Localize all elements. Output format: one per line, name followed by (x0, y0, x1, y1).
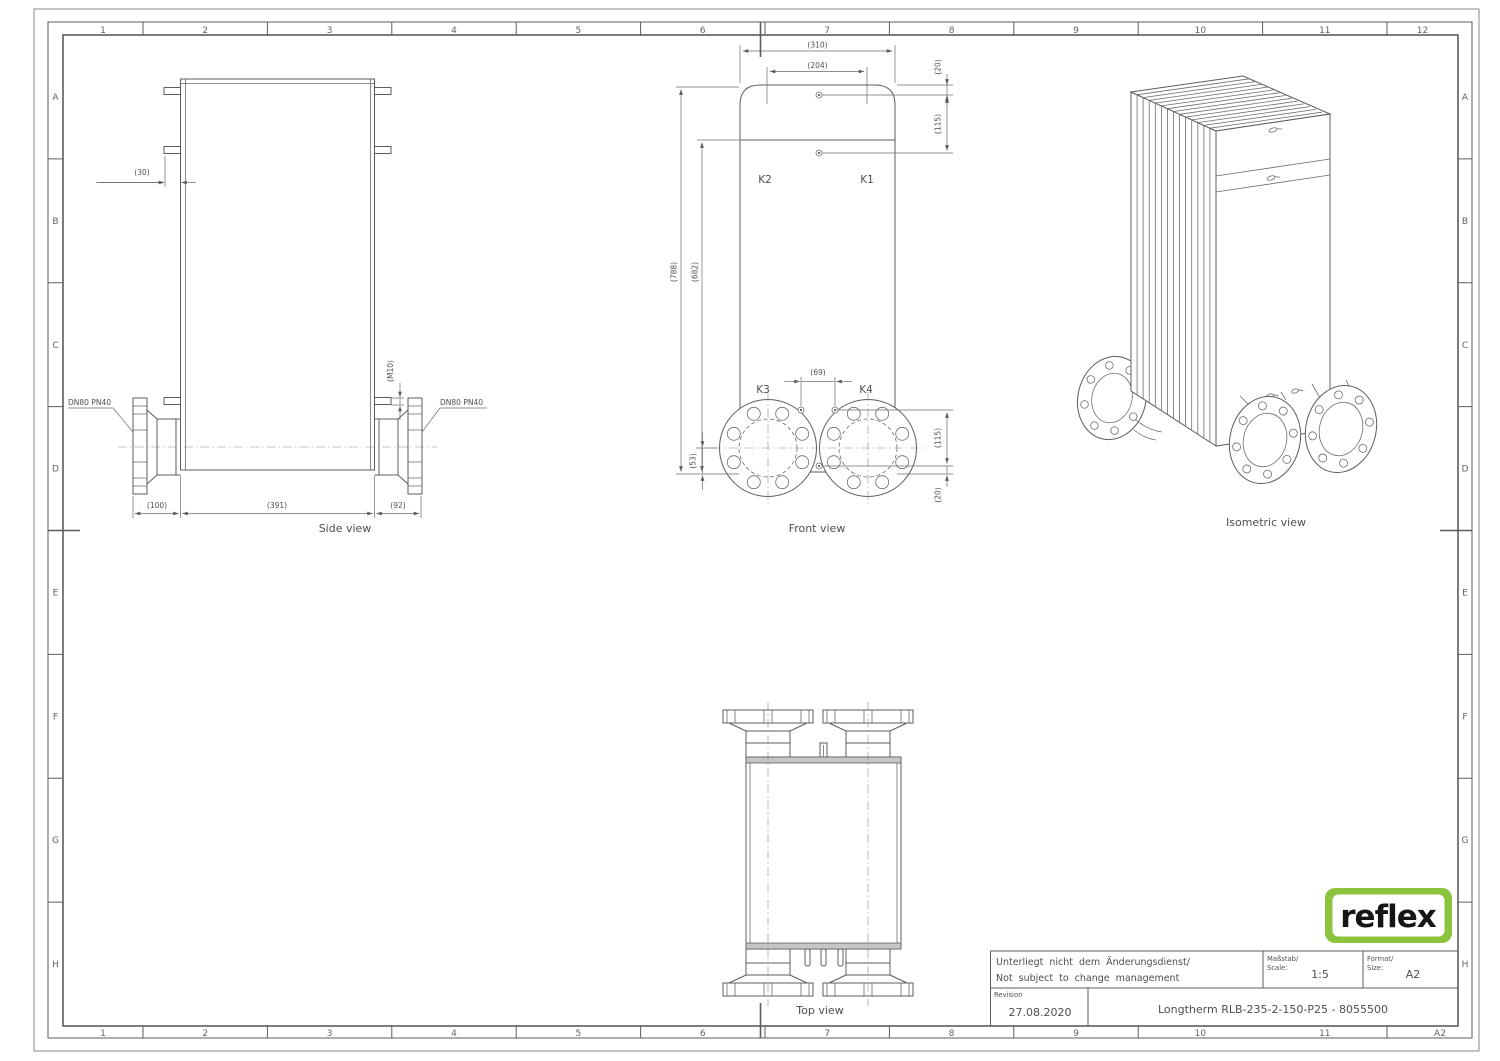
grid-row: A (1462, 93, 1469, 103)
grid-row: G (52, 836, 59, 846)
grid-col: 10 (1195, 1029, 1207, 1039)
grid-col: 12 (1417, 26, 1428, 36)
grid-col: 5 (576, 1029, 582, 1039)
grid-row: F (1462, 713, 1467, 723)
port-k3: K3 (756, 384, 770, 396)
grid-col: 10 (1195, 26, 1207, 36)
scale-value: 1:5 (1311, 968, 1329, 981)
drawing-sheet: 1 2 3 4 5 6 7 8 9 10 11 12 1 2 3 4 5 6 7… (0, 0, 1500, 1061)
format-value: A2 (1406, 968, 1421, 981)
scale-label-de: Maßstab/ (1267, 955, 1299, 963)
grid-col: 1 (100, 1029, 106, 1039)
port-k1: K1 (860, 174, 874, 186)
grid-col: 8 (949, 26, 955, 36)
drawing-title: Longtherm RLB-235-2-150-P25 - 8055500 (1158, 1003, 1388, 1016)
grid-col: 1 (100, 26, 106, 36)
grid-col: 11 (1319, 26, 1330, 36)
grid-col: 9 (1073, 1029, 1079, 1039)
technical-drawing: 1 2 3 4 5 6 7 8 9 10 11 12 1 2 3 4 5 6 7… (0, 0, 1500, 1061)
front-view-label: Front view (789, 522, 846, 535)
grid-col: 3 (327, 1029, 333, 1039)
dim-310: (310) (807, 41, 827, 50)
dim-92: (92) (390, 501, 405, 510)
dim-788: (788) (670, 262, 679, 282)
grid-col: 3 (327, 26, 333, 36)
dim-30: (30) (134, 168, 149, 177)
sheet-size-corner: A2 (1434, 1029, 1446, 1039)
dim-69: (69) (810, 368, 825, 377)
grid-col: 4 (451, 26, 457, 36)
dim-53: (53) (689, 453, 698, 468)
grid-row: H (1462, 960, 1469, 970)
logo-wordmark: reflex (1340, 899, 1436, 935)
grid-col: 4 (451, 1029, 457, 1039)
front-view: (310) (204) (20) (115) (788) (682) (69) … (670, 41, 954, 536)
grid-row: B (1462, 217, 1468, 227)
dim-20-top: (20) (934, 59, 943, 74)
grid-row: B (52, 217, 58, 227)
dim-20-bot: (20) (934, 487, 943, 502)
grid-col: 11 (1319, 1029, 1330, 1039)
change-note-de: Unterliegt nicht dem Änderungsdienst/ (996, 957, 1191, 968)
dim-391: (391) (267, 501, 287, 510)
flange-spec-left: DN80 PN40 (68, 398, 111, 407)
port-k4: K4 (859, 384, 873, 396)
isometric-view-label: Isometric view (1226, 516, 1306, 529)
grid-col: 5 (576, 26, 582, 36)
grid-row: C (1462, 341, 1468, 351)
side-view: DN80 PN40 DN80 PN40 (30) (M10) (100) (39… (68, 79, 487, 535)
dim-100: (100) (147, 501, 167, 510)
dim-m10: (M10) (386, 360, 395, 382)
dim-682: (682) (691, 262, 700, 282)
revision-date: 27.08.2020 (1009, 1006, 1072, 1019)
grid-row: F (53, 713, 58, 723)
side-view-label: Side view (319, 522, 372, 535)
grid-row: A (52, 93, 59, 103)
reflex-logo: reflex (1325, 888, 1452, 943)
grid-row: D (52, 465, 59, 475)
grid-col: 6 (700, 1029, 706, 1039)
dim-115-bot: (115) (934, 428, 943, 448)
grid-letters-left: A B C D E F G H (52, 93, 59, 970)
flange-spec-right: DN80 PN40 (440, 398, 483, 407)
format-label-de: Format/ (1367, 955, 1394, 963)
grid-row: E (1462, 589, 1468, 599)
title-block: Unterliegt nicht dem Änderungsdienst/ No… (991, 951, 1459, 1026)
grid-col: 7 (824, 26, 830, 36)
grid-col: 2 (202, 26, 208, 36)
port-k2: K2 (758, 174, 772, 186)
grid-col: 6 (700, 26, 706, 36)
change-note-en: Not subject to change management (996, 973, 1180, 984)
dim-204: (204) (807, 61, 827, 70)
grid-row: C (52, 341, 58, 351)
isometric-view: Isometric view (1069, 76, 1386, 529)
grid-col: 7 (824, 1029, 830, 1039)
grid-col: 9 (1073, 26, 1079, 36)
grid-row: D (1462, 465, 1469, 475)
format-label-en: Size: (1367, 964, 1383, 972)
revision-label: Revision (994, 991, 1022, 999)
grid-col: 8 (949, 1029, 955, 1039)
scale-label-en: Scale: (1267, 964, 1288, 972)
grid-row: H (52, 960, 59, 970)
grid-col: 2 (202, 1029, 208, 1039)
grid-row: E (53, 589, 59, 599)
top-view: Top view (723, 702, 913, 1017)
dim-115-top: (115) (934, 114, 943, 134)
top-view-label: Top view (795, 1004, 843, 1017)
grid-row: G (1462, 836, 1469, 846)
grid-letters-right: A B C D E F G H (1462, 93, 1469, 970)
